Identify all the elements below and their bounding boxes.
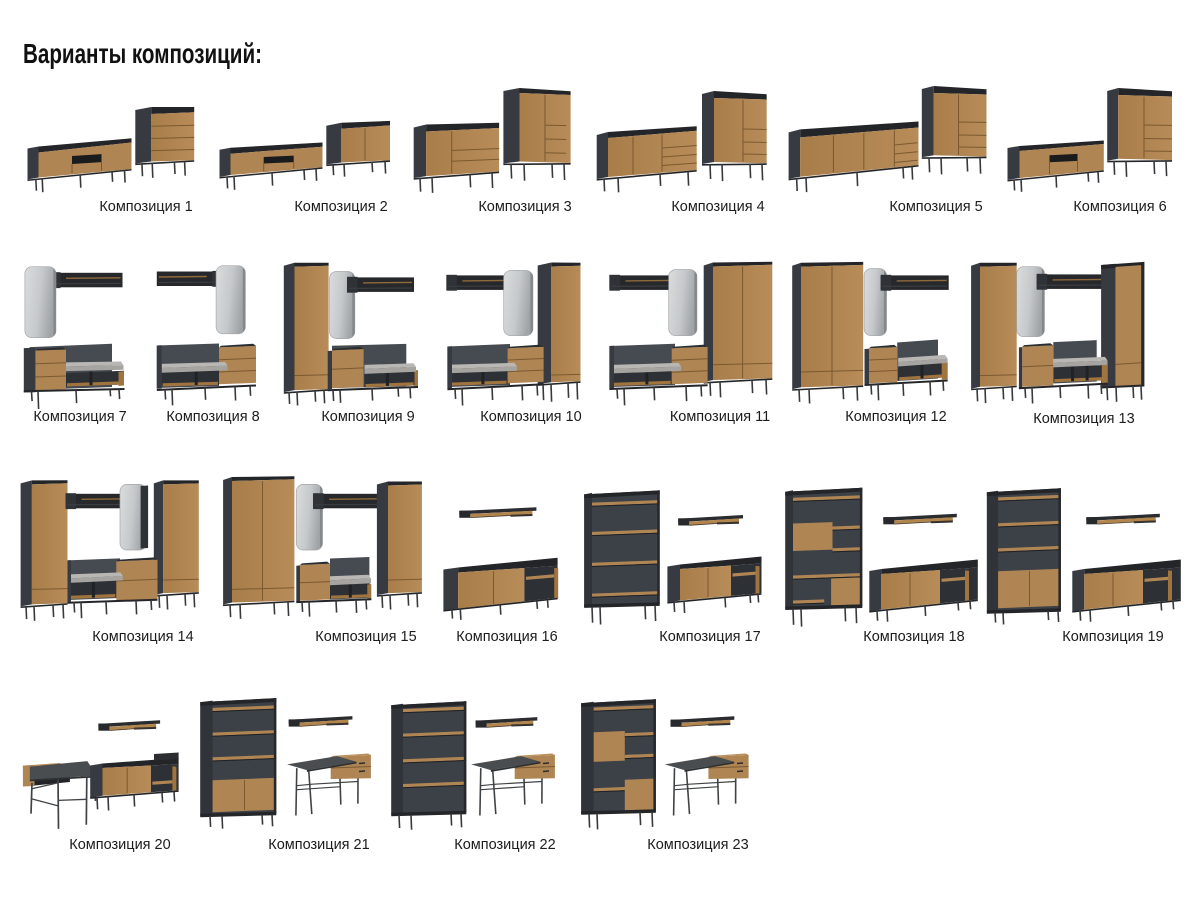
svg-text:Композиция 20: Композиция 20: [69, 837, 170, 853]
svg-text:Композиция 9: Композиция 9: [321, 409, 414, 425]
svg-text:Композиция 16: Композиция 16: [456, 629, 557, 645]
svg-text:Композиция 1: Композиция 1: [99, 199, 192, 215]
svg-text:Композиция 21: Композиция 21: [268, 837, 369, 853]
svg-text:Композиция 23: Композиция 23: [647, 837, 748, 853]
svg-text:Композиция 13: Композиция 13: [1033, 411, 1134, 427]
svg-text:Композиция 5: Композиция 5: [889, 199, 982, 215]
svg-text:Композиция 8: Композиция 8: [166, 409, 259, 425]
svg-text:Композиция 3: Композиция 3: [478, 199, 571, 215]
svg-text:Композиция 11: Композиция 11: [670, 409, 770, 425]
svg-text:Композиция 14: Композиция 14: [92, 629, 193, 645]
svg-text:Композиция 15: Композиция 15: [315, 629, 416, 645]
svg-text:Композиция 12: Композиция 12: [845, 409, 946, 425]
svg-text:Композиция 17: Композиция 17: [659, 629, 760, 645]
svg-text:Композиция 2: Композиция 2: [294, 199, 387, 215]
svg-text:Композиция 7: Композиция 7: [33, 409, 126, 425]
svg-text:Композиция 18: Композиция 18: [863, 629, 964, 645]
svg-text:Композиция 10: Композиция 10: [480, 409, 581, 425]
svg-text:Композиция 19: Композиция 19: [1062, 629, 1163, 645]
svg-text:Композиция 6: Композиция 6: [1073, 199, 1166, 215]
svg-text:Варианты композиций:: Варианты композиций:: [23, 38, 262, 69]
svg-text:Композиция 4: Композиция 4: [671, 199, 764, 215]
svg-text:Композиция 22: Композиция 22: [454, 837, 555, 853]
